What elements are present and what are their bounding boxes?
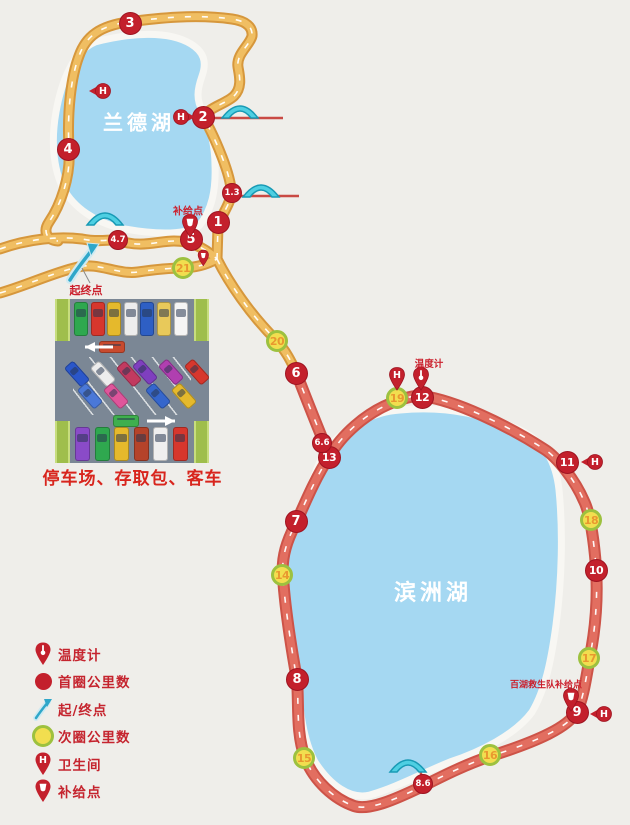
first-lap-marker-8: 8 xyxy=(286,668,309,691)
map-label: 补给点 xyxy=(173,203,203,218)
second-lap-marker-21: 21 xyxy=(172,257,194,279)
thermometer-pin xyxy=(28,641,58,667)
distance-marker-8.6: 8.6 xyxy=(413,774,433,794)
distance-marker-4.7: 4.7 xyxy=(108,230,128,250)
svg-text:H: H xyxy=(393,370,401,381)
legend-label: 次圈公里数 xyxy=(58,726,131,746)
supply-pin xyxy=(562,687,581,717)
first-lap-marker-1: 1 xyxy=(207,211,230,234)
second-lap-marker-14: 14 xyxy=(271,564,293,586)
distance-marker-1.3: 1.3 xyxy=(222,183,242,203)
legend-row-thermometer-pin: 温度计 xyxy=(28,640,198,668)
svg-text:H: H xyxy=(39,755,47,766)
legend-row-restroom-pin: H 卫生间 xyxy=(28,750,198,778)
second-lap-marker-15: 15 xyxy=(293,747,315,769)
svg-text:H: H xyxy=(177,112,185,123)
map-label: 温度计 xyxy=(415,356,444,370)
second-lap-marker-16: 16 xyxy=(479,744,501,766)
second-lap-marker-18: 18 xyxy=(580,509,602,531)
start-arrow xyxy=(28,697,58,721)
legend-row-red-circle: 首圈公里数 xyxy=(28,668,198,696)
second-lap-marker-17: 17 xyxy=(578,647,600,669)
legend-row-start-arrow: 起/终点 xyxy=(28,695,198,723)
supply-pin xyxy=(181,213,200,243)
thermometer-pin xyxy=(412,366,431,396)
svg-text:H: H xyxy=(591,457,599,468)
first-lap-marker-11: 11 xyxy=(556,451,579,474)
legend-label: 起/终点 xyxy=(58,699,107,719)
legend-label: 温度计 xyxy=(58,644,102,664)
supply-pin xyxy=(197,249,210,271)
route-map: 停车场、存取包、客车 兰德湖 滨洲湖 123456789101112131415… xyxy=(0,0,630,825)
svg-text:H: H xyxy=(600,709,608,720)
legend-row-supply-pin: 补给点 xyxy=(28,778,198,806)
first-lap-marker-10: 10 xyxy=(585,559,608,582)
first-lap-marker-4: 4 xyxy=(57,138,80,161)
svg-text:H: H xyxy=(99,86,107,97)
supply-pin xyxy=(28,778,58,804)
legend-label: 补给点 xyxy=(58,781,102,801)
distance-marker-6.6: 6.6 xyxy=(312,433,332,453)
map-legend: 温度计 首圈公里数 起/终点 次圈公里数H 卫生间 补给点 xyxy=(28,640,198,805)
restroom-pin: H xyxy=(578,453,604,476)
first-lap-marker-3: 3 xyxy=(119,12,142,35)
legend-label: 首圈公里数 xyxy=(58,671,131,691)
restroom-pin: H xyxy=(86,82,112,105)
map-label: 百湖救生队补给点 xyxy=(510,678,582,691)
restroom-pin: H xyxy=(587,705,613,728)
legend-row-yellow-circle: 次圈公里数 xyxy=(28,723,198,751)
yellow-circle xyxy=(28,725,58,747)
restroom-pin: H xyxy=(388,366,407,396)
restroom-pin: H xyxy=(172,108,198,131)
second-lap-marker-20: 20 xyxy=(266,330,288,352)
legend-label: 卫生间 xyxy=(58,754,102,774)
map-label: 起终点 xyxy=(70,282,103,298)
first-lap-marker-6: 6 xyxy=(285,362,308,385)
restroom-pin: H xyxy=(28,751,58,777)
first-lap-marker-7: 7 xyxy=(285,510,308,533)
red-circle xyxy=(28,673,58,690)
